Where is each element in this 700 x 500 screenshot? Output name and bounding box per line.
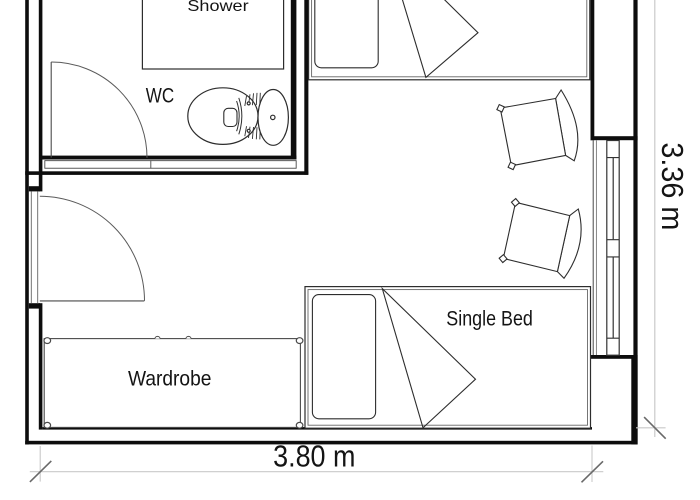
svg-text:3.36 m: 3.36 m bbox=[655, 142, 689, 230]
svg-text:Wardrobe: Wardrobe bbox=[128, 367, 212, 391]
svg-text:WC: WC bbox=[146, 83, 174, 107]
svg-text:3.80 m: 3.80 m bbox=[273, 439, 355, 473]
svg-text:Single Bed: Single Bed bbox=[446, 307, 533, 331]
svg-text:Shower: Shower bbox=[187, 0, 249, 15]
